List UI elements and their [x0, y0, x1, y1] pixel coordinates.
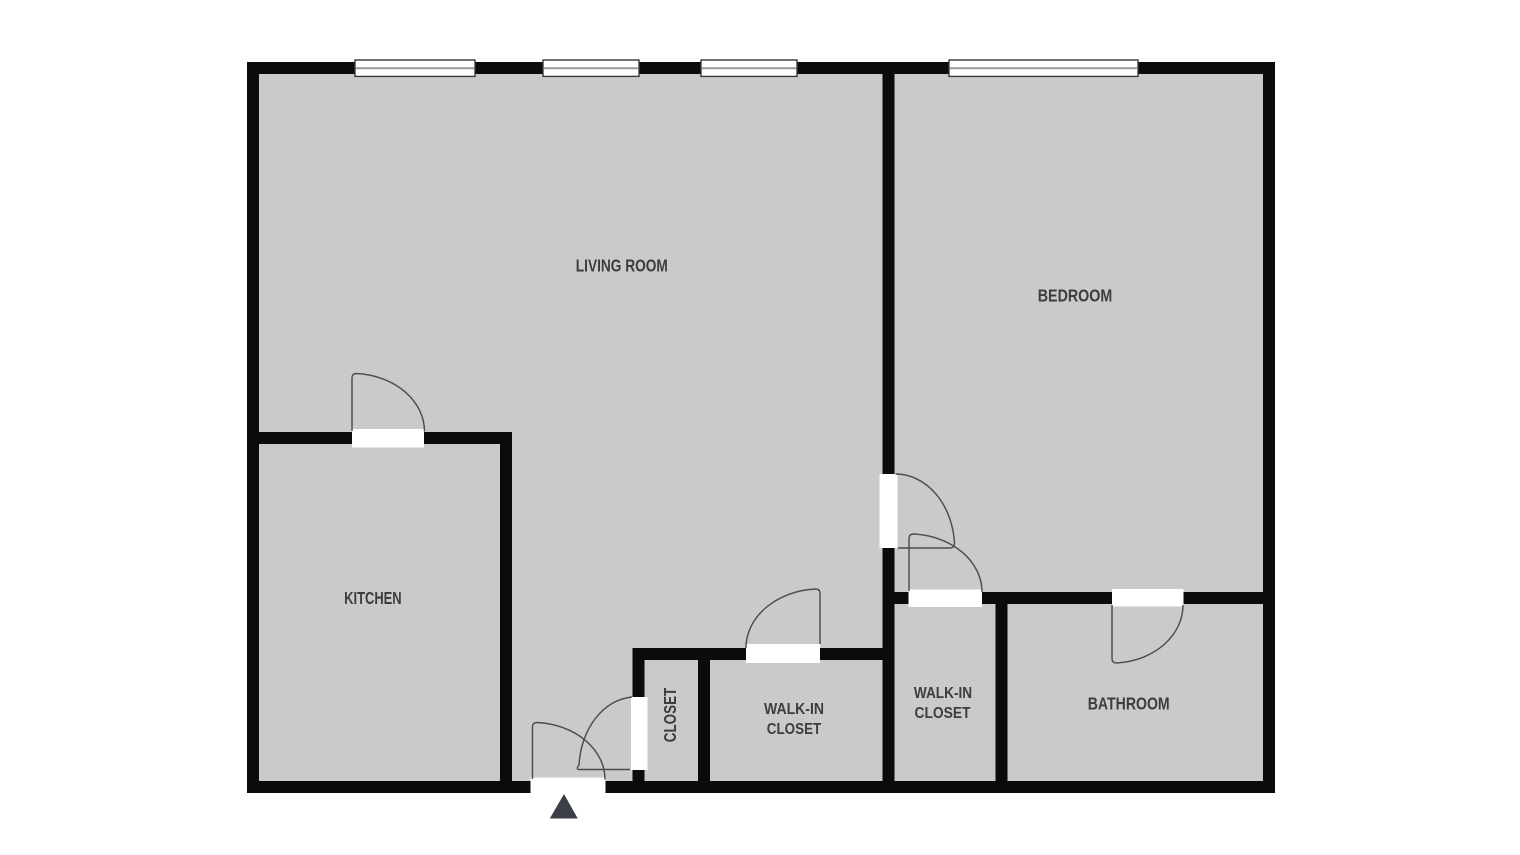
- svg-text:CLOSET: CLOSET: [660, 688, 680, 743]
- svg-text:BEDROOM: BEDROOM: [1038, 286, 1113, 306]
- svg-text:CLOSET: CLOSET: [915, 705, 971, 722]
- svg-text:LIVING ROOM: LIVING ROOM: [576, 256, 668, 276]
- svg-text:WALK-IN: WALK-IN: [764, 701, 824, 718]
- svg-text:WALK-IN: WALK-IN: [914, 685, 972, 702]
- svg-text:KITCHEN: KITCHEN: [344, 588, 402, 608]
- svg-text:BATHROOM: BATHROOM: [1088, 693, 1170, 713]
- svg-text:CLOSET: CLOSET: [767, 721, 822, 738]
